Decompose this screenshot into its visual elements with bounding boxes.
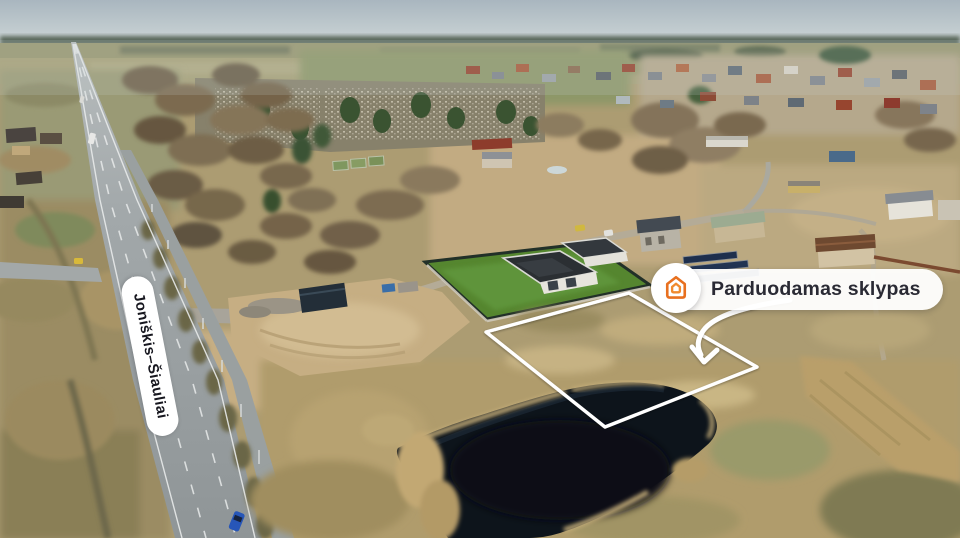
aerial-photo: Parduodamas sklypas Joniškis–Šiauliai: [0, 0, 960, 538]
badge-icon-circle: [651, 263, 701, 313]
house-logo-icon: [661, 273, 691, 303]
sale-badge: Parduodamas sklypas: [651, 263, 943, 313]
sale-badge-label: Parduodamas sklypas: [659, 269, 943, 310]
sale-badge-text: Parduodamas sklypas: [711, 278, 921, 301]
